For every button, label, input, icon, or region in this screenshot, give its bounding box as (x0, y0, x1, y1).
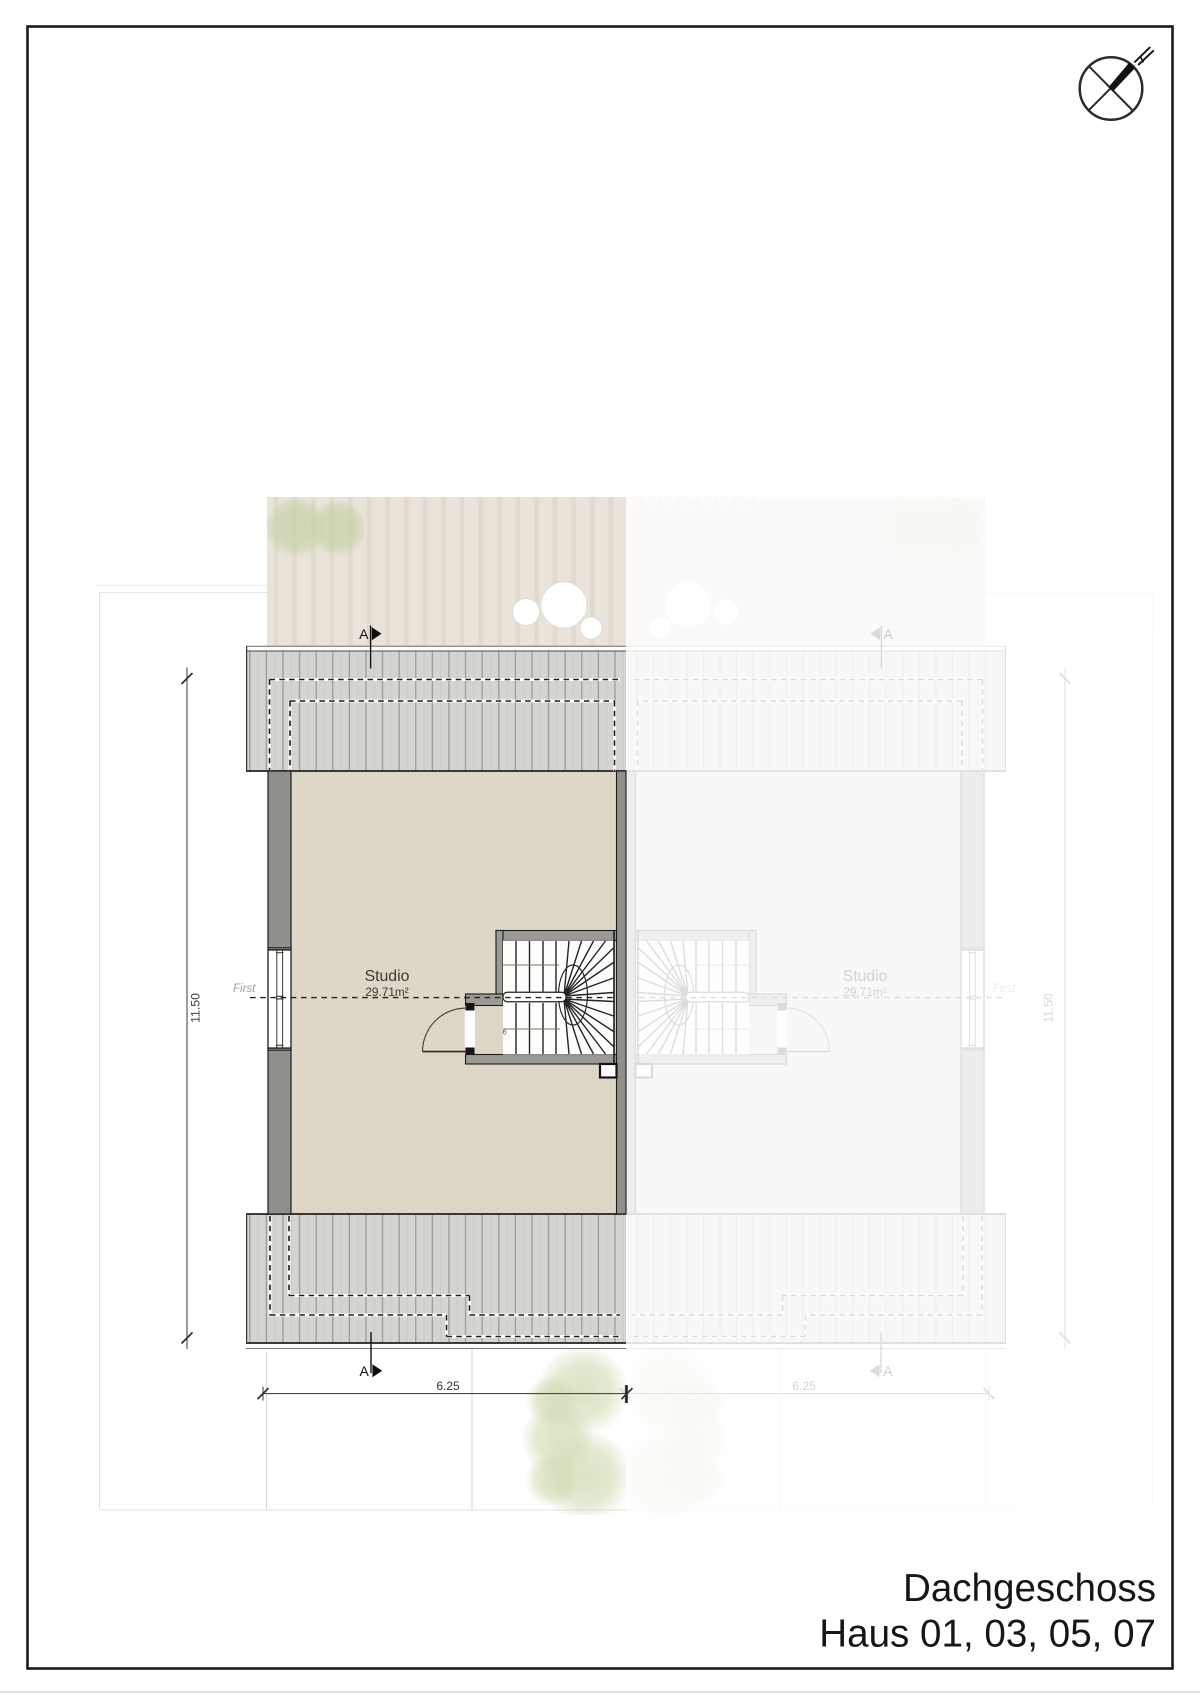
svg-text:A: A (360, 1363, 370, 1379)
svg-text:First: First (233, 983, 256, 995)
svg-text:29.71m²: 29.71m² (843, 985, 886, 999)
svg-text:11.50: 11.50 (1042, 993, 1056, 1023)
svg-text:A: A (884, 626, 894, 642)
svg-text:6: 6 (503, 1028, 507, 1037)
svg-text:Studio: Studio (843, 968, 888, 985)
svg-text:11.50: 11.50 (189, 993, 203, 1023)
svg-text:Dachgeschoss: Dachgeschoss (903, 1567, 1156, 1610)
svg-text:29.71m²: 29.71m² (365, 985, 408, 999)
svg-text:A: A (359, 626, 369, 642)
svg-text:Studio: Studio (365, 968, 410, 985)
svg-text:A: A (883, 1363, 893, 1379)
svg-text:6.25: 6.25 (436, 1379, 460, 1393)
svg-text:First: First (993, 983, 1016, 995)
svg-text:6.25: 6.25 (792, 1379, 816, 1393)
svg-text:Haus 01, 03, 05, 07: Haus 01, 03, 05, 07 (819, 1613, 1156, 1656)
